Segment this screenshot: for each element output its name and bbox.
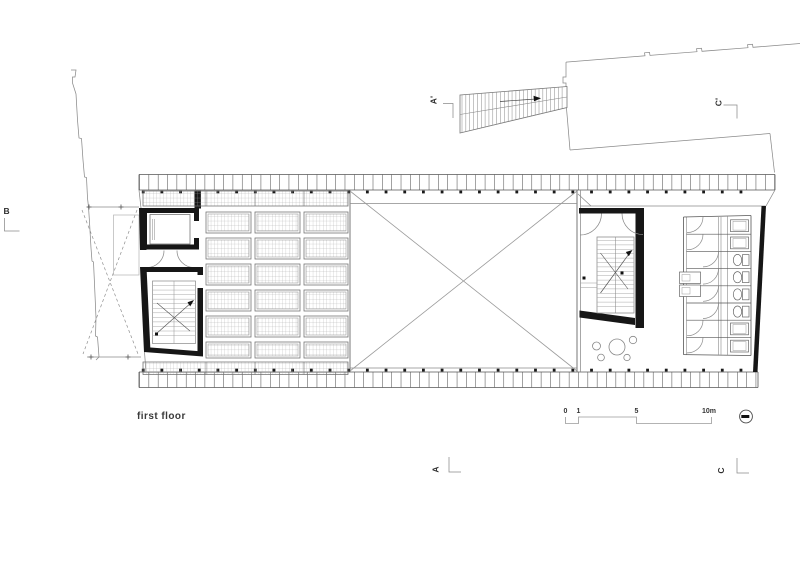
forecourt-dashed-cross — [82, 210, 138, 354]
section-marker-c-bottom: C — [716, 458, 749, 474]
floor-plan-svg: B A' C' A C first floor 0 1 5 10m — [0, 0, 800, 566]
floor-plan-sheet: B A' C' A C first floor 0 1 5 10m — [0, 0, 800, 566]
stair-core-right — [579, 208, 644, 328]
section-label-c-bottom: C — [716, 467, 726, 473]
north-indicator-icon — [740, 410, 753, 423]
scale-label-0: 0 — [564, 408, 568, 415]
section-label-b: B — [4, 206, 10, 216]
forecourt-platform — [114, 215, 140, 275]
top-facade-colonnade — [139, 175, 775, 191]
section-marker-b: B — [4, 206, 20, 231]
scale-label-10m: 10m — [702, 408, 716, 415]
stair-core-left — [142, 267, 204, 357]
toilet-block — [680, 216, 752, 356]
main-building — [139, 175, 775, 388]
section-label-a-top: A' — [429, 96, 439, 105]
neighbor-building-upper — [563, 44, 800, 173]
neighbor-building-left — [71, 70, 141, 360]
section-marker-c-top: C' — [714, 98, 738, 119]
lobby-doors — [147, 251, 194, 268]
section-label-c-top: C' — [714, 98, 724, 107]
section-label-a-bottom: A — [431, 466, 441, 472]
void-cross-area — [350, 190, 591, 372]
section-marker-a-bottom: A — [431, 457, 462, 473]
floor-label: first floor — [137, 411, 186, 422]
right-end-wall — [753, 206, 766, 372]
scale-bar: 0 1 5 10m — [564, 408, 716, 424]
scale-label-5: 5 — [635, 408, 639, 415]
section-marker-a-top: A' — [429, 96, 454, 118]
meeting-table-circles — [593, 336, 637, 361]
scale-label-1: 1 — [577, 408, 581, 415]
exterior-stair-hatched — [460, 87, 567, 134]
